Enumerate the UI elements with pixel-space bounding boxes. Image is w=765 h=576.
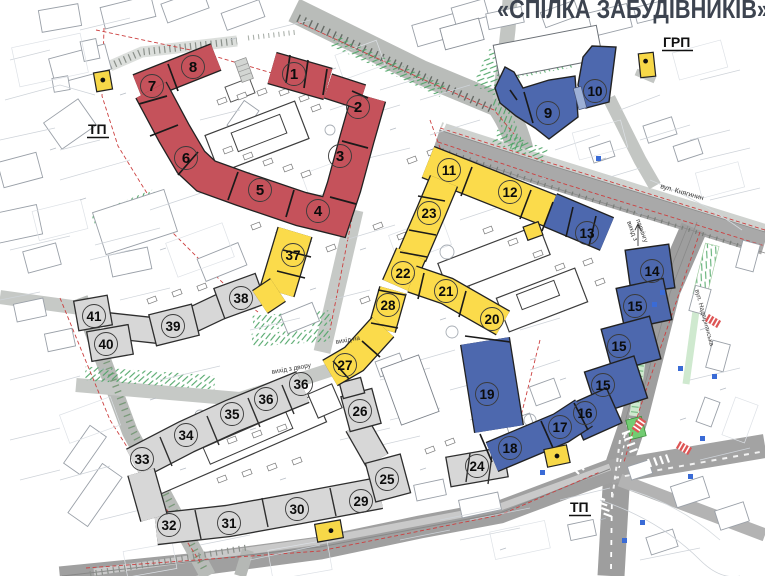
svg-text:11: 11 bbox=[442, 163, 457, 178]
svg-text:39: 39 bbox=[165, 319, 180, 334]
svg-text:36: 36 bbox=[293, 377, 309, 392]
svg-text:36: 36 bbox=[258, 392, 274, 407]
svg-text:31: 31 bbox=[221, 516, 237, 531]
svg-text:3: 3 bbox=[336, 148, 344, 165]
svg-text:12: 12 bbox=[502, 185, 517, 200]
svg-text:18: 18 bbox=[502, 441, 518, 456]
svg-text:24: 24 bbox=[469, 459, 485, 474]
svg-text:41: 41 bbox=[86, 309, 102, 324]
svg-text:15: 15 bbox=[611, 339, 627, 354]
svg-text:7: 7 bbox=[148, 78, 156, 95]
svg-text:8: 8 bbox=[189, 59, 197, 76]
svg-text:30: 30 bbox=[289, 502, 304, 517]
svg-text:5: 5 bbox=[256, 182, 264, 199]
svg-text:9: 9 bbox=[544, 105, 552, 122]
svg-text:33: 33 bbox=[134, 452, 150, 467]
svg-text:27: 27 bbox=[337, 358, 352, 373]
svg-text:29: 29 bbox=[353, 494, 368, 509]
svg-text:4: 4 bbox=[314, 203, 323, 220]
svg-text:16: 16 bbox=[577, 406, 593, 421]
svg-text:10: 10 bbox=[587, 84, 602, 99]
svg-text:34: 34 bbox=[178, 428, 194, 443]
svg-text:«СПІЛКА ЗАБУДІВНИКІВ»: «СПІЛКА ЗАБУДІВНИКІВ» bbox=[497, 0, 765, 24]
svg-text:ТП: ТП bbox=[570, 499, 589, 515]
svg-text:2: 2 bbox=[354, 99, 362, 116]
svg-text:38: 38 bbox=[233, 291, 249, 306]
svg-text:21: 21 bbox=[438, 284, 454, 299]
svg-text:15: 15 bbox=[595, 378, 611, 393]
svg-text:17: 17 bbox=[552, 420, 567, 435]
svg-text:19: 19 bbox=[479, 387, 494, 402]
svg-text:1: 1 bbox=[290, 66, 298, 83]
svg-text:32: 32 bbox=[161, 518, 176, 533]
svg-text:23: 23 bbox=[421, 206, 437, 221]
svg-text:13: 13 bbox=[579, 226, 595, 241]
svg-text:25: 25 bbox=[379, 472, 395, 487]
svg-text:14: 14 bbox=[644, 264, 660, 279]
svg-text:15: 15 bbox=[627, 299, 643, 314]
svg-text:6: 6 bbox=[182, 150, 190, 167]
svg-text:20: 20 bbox=[484, 312, 499, 327]
svg-text:26: 26 bbox=[352, 404, 368, 419]
svg-text:28: 28 bbox=[380, 298, 396, 313]
svg-text:35: 35 bbox=[224, 407, 240, 422]
svg-text:22: 22 bbox=[395, 266, 410, 281]
svg-text:40: 40 bbox=[98, 337, 113, 352]
svg-text:37: 37 bbox=[285, 248, 300, 263]
svg-text:ТП: ТП bbox=[88, 121, 107, 137]
svg-text:ГРП: ГРП bbox=[663, 34, 690, 50]
